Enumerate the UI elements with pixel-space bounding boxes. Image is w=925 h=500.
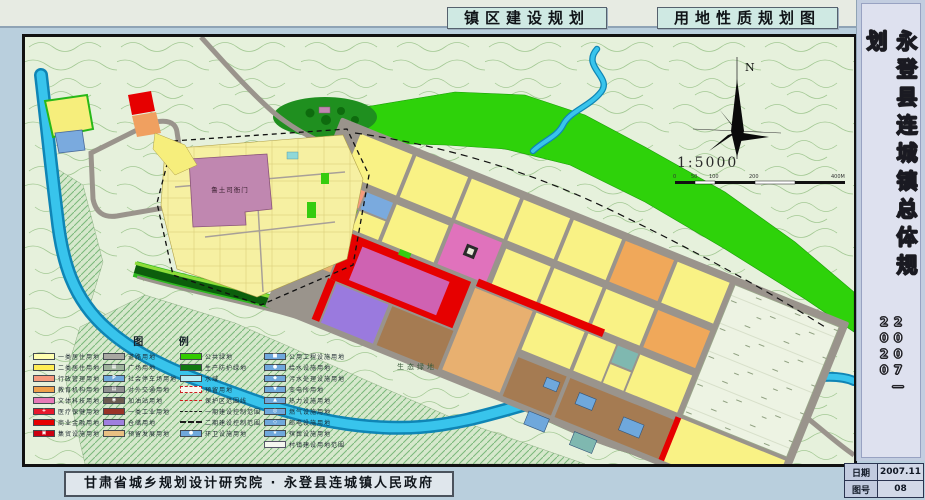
legend-item: ◉加油站用地: [103, 396, 177, 404]
legend-item-label: 热力设施用地: [289, 396, 331, 405]
scalebar-tick-50: 50: [691, 174, 697, 180]
date-value: 2007.11: [878, 464, 924, 481]
legend-swatch: [103, 353, 125, 360]
legend-swatch: [33, 375, 55, 382]
legend-item-label: 水域: [205, 374, 219, 383]
sheet-label: 图号: [845, 481, 878, 498]
legend-swatch: ▲: [264, 397, 286, 404]
legend-column: 道路用地▦广场用地P社会停车场用地▤对外交通用地◉加油站用地一类工业用地仓储用地…: [103, 352, 177, 448]
legend-swatch: [33, 364, 55, 371]
legend-item: 公共绿地: [180, 352, 261, 360]
legend-item-label: 预留发展用地: [128, 429, 170, 438]
legend-item: ◆污水处理设施用地: [264, 374, 345, 382]
legend-item: ■公用工程设施用地: [264, 352, 345, 360]
legend-item-label: 广场用地: [128, 363, 156, 372]
eco-green-label: 生态绿地: [397, 362, 437, 371]
legend-swatch: ▣: [33, 430, 55, 437]
legend-item: +医疗保健用地: [33, 407, 100, 415]
legend-item-label: 变电所用地: [289, 385, 324, 394]
legend-item: 水域: [180, 374, 261, 382]
legend-swatch: [180, 386, 202, 393]
legend-item-label: 行政管理用地: [58, 374, 100, 383]
legend-item-label: 环卫设施用地: [205, 429, 247, 438]
legend-item: 二期建设控制范围: [180, 418, 261, 426]
legend-item-label: 文体科技用地: [58, 396, 100, 405]
legend-item-label: 一类工业用地: [128, 407, 170, 416]
legend-item-label: 集贸设施用地: [58, 429, 100, 438]
plan-period-vertical: 2007—2020: [877, 315, 905, 457]
legend-item: 一类居住用地: [33, 352, 100, 360]
legend-item-label: 道路用地: [128, 352, 156, 361]
legend-item-label: 加油站用地: [128, 396, 163, 405]
legend-swatch: [33, 419, 55, 426]
plan-title-vertical: 永登县连城镇总体规划: [861, 30, 921, 307]
legend-swatch: [180, 364, 202, 371]
date-label: 日期: [845, 464, 878, 481]
legend-swatch: [180, 419, 202, 426]
legend-item-label: 商业金融用地: [58, 418, 100, 427]
legend-item: 二类居住用地: [33, 363, 100, 371]
legend-swatch: ▤: [103, 386, 125, 393]
scalebar-tick-0: 0: [673, 174, 676, 180]
legend-swatch: [180, 408, 202, 415]
legend-item-label: 医疗保健用地: [58, 407, 100, 416]
scalebar-tick-100: 100: [709, 174, 719, 180]
legend-item-label: 仓储用地: [128, 418, 156, 427]
legend-item: ●环卫设施用地: [180, 429, 261, 437]
legend-swatch: [33, 397, 55, 404]
legend-column: ■公用工程设施用地●给水设施用地◆污水处理设施用地▼变电所用地▲热力设施用地◎燃…: [264, 352, 345, 448]
legend-item: 一期建设控制范围: [180, 407, 261, 415]
title-construction-plan: 镇区建设规划: [447, 7, 607, 29]
legend-item-label: 生产防护绿地: [205, 363, 247, 372]
legend-swatch: ▦: [103, 364, 125, 371]
legend-item: ▣集贸设施用地: [33, 429, 100, 437]
legend-item-label: 殡葬设施用地: [289, 429, 331, 438]
legend-item-label: 教育机构用地: [58, 385, 100, 394]
legend-item: 文体科技用地: [33, 396, 100, 404]
legend-item: 道路用地: [103, 352, 177, 360]
legend-swatch: ★: [264, 430, 286, 437]
legend-swatch: [264, 441, 286, 448]
legend-item: ▲热力设施用地: [264, 396, 345, 404]
title-block-sidebar: 永登县连城镇总体规划 2007—2020: [856, 0, 925, 461]
legend-item: 预留发展用地: [103, 429, 177, 437]
legend-swatch: ■: [264, 353, 286, 360]
legend-item-label: 对外交通用地: [128, 385, 170, 394]
scalebar-tick-200: 200: [749, 174, 759, 180]
table-row: 日期 2007.11: [845, 464, 924, 481]
legend-item: ★殡葬设施用地: [264, 429, 345, 437]
legend-item: P社会停车场用地: [103, 374, 177, 382]
scale-label: 1:5000: [677, 155, 738, 171]
legend-item: 行政管理用地: [33, 374, 100, 382]
legend-item: ▤对外交通用地: [103, 385, 177, 393]
legend-swatch: [33, 353, 55, 360]
legend-item: 生产防护绿地: [180, 363, 261, 371]
legend-swatch: ◆: [264, 375, 286, 382]
sheet-info-table: 日期 2007.11 图号 08: [844, 463, 924, 498]
title-landuse-plan: 用地性质规划图: [657, 7, 838, 29]
legend-swatch: ▼: [264, 386, 286, 393]
legend-item: ◎燃气设施用地: [264, 407, 345, 415]
legend-swatch: ●: [264, 364, 286, 371]
legend-swatch: ◇: [264, 419, 286, 426]
legend-swatch: +: [33, 408, 55, 415]
legend-item-label: 燃气设施用地: [289, 407, 331, 416]
legend-item-label: 公共绿地: [205, 352, 233, 361]
credits-bar: 甘肃省城乡规划设计研究院 · 永登县连城镇人民政府: [64, 471, 454, 497]
legend-column: 一类居住用地二类居住用地行政管理用地教育机构用地文体科技用地+医疗保健用地商业金…: [33, 352, 100, 448]
legend-swatch: ◎: [264, 408, 286, 415]
scalebar-tick-400: 400M: [831, 174, 845, 180]
legend-swatch: [180, 353, 202, 360]
legend-item-label: 污水处理设施用地: [289, 374, 345, 383]
legend-item-label: 一类居住用地: [58, 352, 100, 361]
legend-item-label: 邮电设施用地: [289, 418, 331, 427]
legend-swatch: P: [103, 375, 125, 382]
legend: 图 例 一类居住用地二类居住用地行政管理用地教育机构用地文体科技用地+医疗保健用…: [33, 333, 289, 448]
legend-item: 仓储用地: [103, 418, 177, 426]
sheet-value: 08: [878, 481, 924, 498]
legend-item: ▦广场用地: [103, 363, 177, 371]
legend-swatch: [103, 408, 125, 415]
legend-item-label: 预留用地: [205, 385, 233, 394]
legend-item: ◇邮电设施用地: [264, 418, 345, 426]
legend-item: 商业金融用地: [33, 418, 100, 426]
legend-swatch: [103, 419, 125, 426]
legend-column: 公共绿地生产防护绿地水域预留用地保护区范围线一期建设控制范围二期建设控制范围●环…: [180, 352, 261, 448]
legend-item: 教育机构用地: [33, 385, 100, 393]
legend-swatch: ●: [180, 430, 202, 437]
legend-title: 图 例: [33, 333, 289, 348]
landmark-label: 鲁土司衙门: [211, 185, 249, 194]
legend-item: ●给水设施用地: [264, 363, 345, 371]
legend-item-label: 保护区范围线: [205, 396, 247, 405]
legend-item: 保护区范围线: [180, 396, 261, 404]
legend-item-label: 一期建设控制范围: [205, 407, 261, 416]
table-row: 图号 08: [845, 481, 924, 498]
legend-swatch: [180, 397, 202, 404]
legend-swatch: [180, 375, 202, 382]
legend-item: 村镇建设用地范围: [264, 440, 345, 448]
legend-item-label: 公用工程设施用地: [289, 352, 345, 361]
legend-item-label: 社会停车场用地: [128, 374, 177, 383]
title-block-panel: 永登县连城镇总体规划 2007—2020: [861, 3, 921, 458]
legend-item: ▼变电所用地: [264, 385, 345, 393]
legend-item-label: 村镇建设用地范围: [289, 440, 345, 449]
legend-item-label: 二类居住用地: [58, 363, 100, 372]
legend-swatch: ◉: [103, 397, 125, 404]
legend-swatch: [103, 430, 125, 437]
page: { "header": { "title_left": "镇区建设规划", "t…: [0, 0, 925, 500]
map-frame: 鲁土司衙门 生态绿地 N 1:5000 0 50 100 200 400M: [22, 34, 857, 467]
legend-item-label: 二期建设控制范围: [205, 418, 261, 427]
legend-item: 预留用地: [180, 385, 261, 393]
legend-columns: 一类居住用地二类居住用地行政管理用地教育机构用地文体科技用地+医疗保健用地商业金…: [33, 352, 289, 448]
north-label: N: [745, 61, 755, 74]
legend-item: 一类工业用地: [103, 407, 177, 415]
header-band: 镇区建设规划 用地性质规划图: [0, 0, 925, 28]
legend-swatch: [33, 386, 55, 393]
legend-item-label: 给水设施用地: [289, 363, 331, 372]
